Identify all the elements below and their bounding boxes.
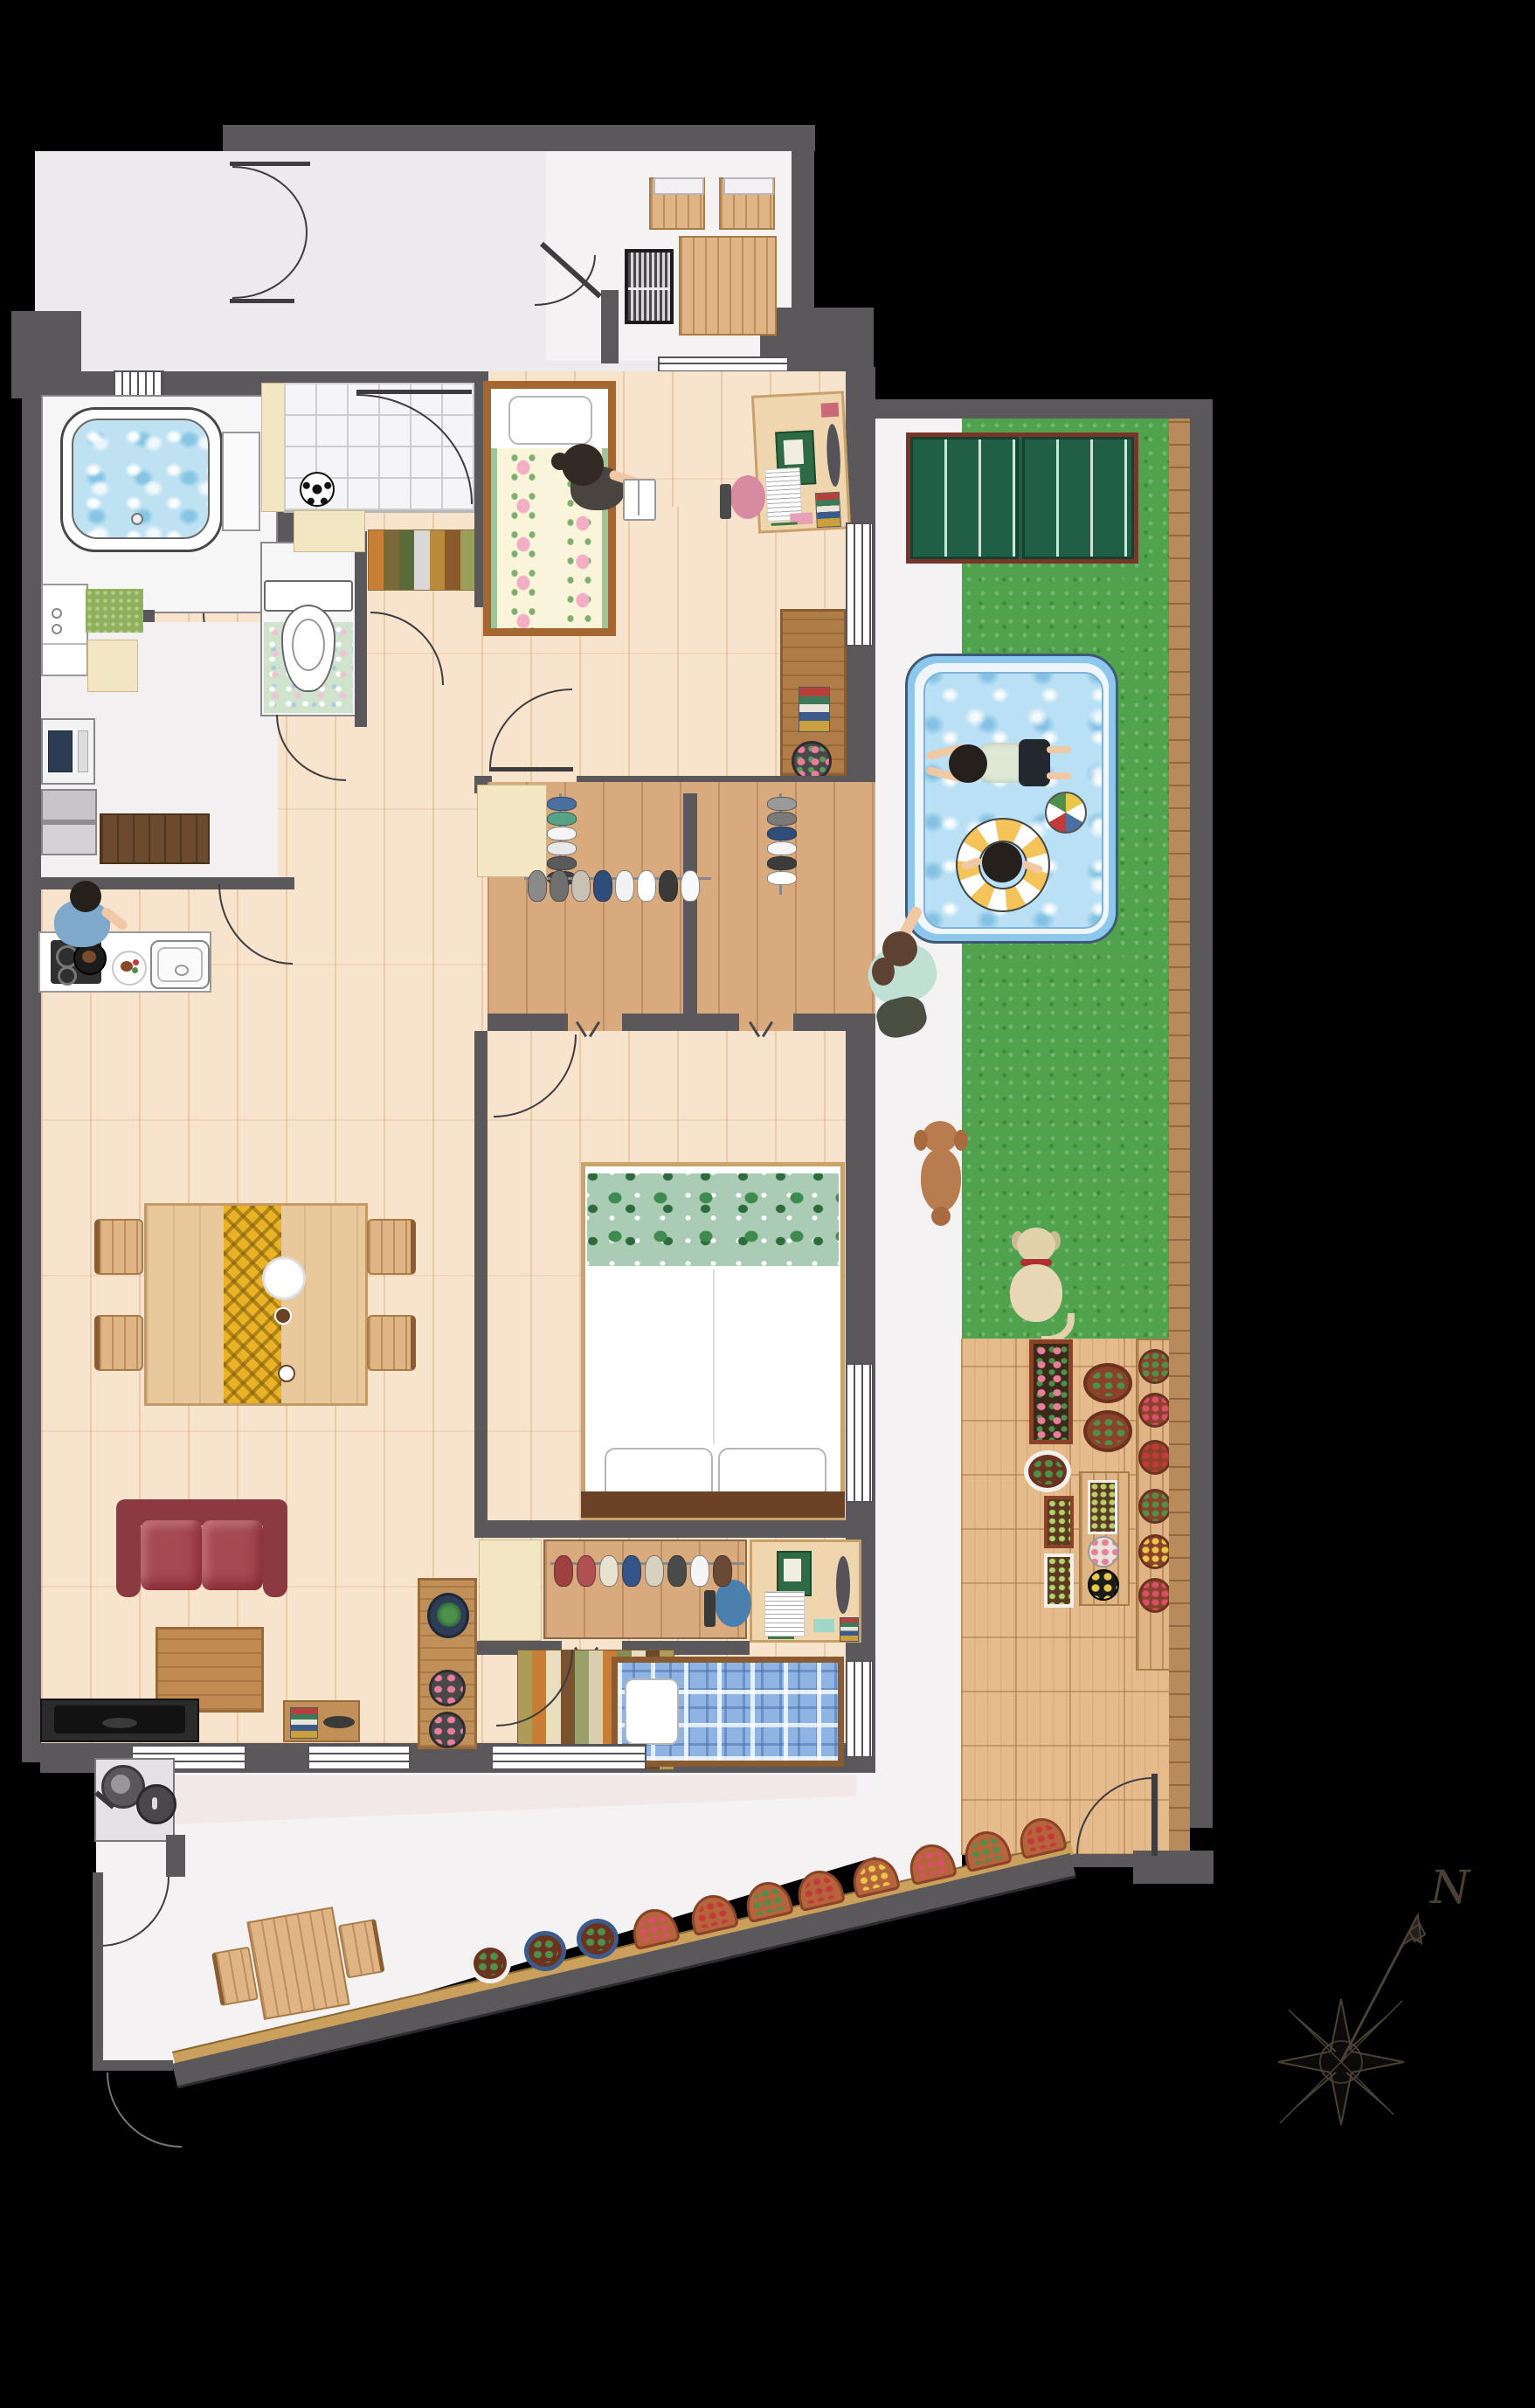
balcony-chair (649, 177, 705, 230)
potted-plant (427, 1593, 469, 1638)
sofa-red (116, 1499, 287, 1601)
flower-pot (429, 1670, 466, 1706)
hanging-clothes (690, 1555, 709, 1587)
dining-table (144, 1203, 368, 1406)
hanging-clothes (577, 1555, 596, 1587)
floor-plan: N (0, 0, 1535, 2408)
bedroom2-window (846, 1363, 874, 1503)
entrance-double-door (230, 162, 310, 166)
plate-of-food (112, 951, 147, 986)
child-in-swim-ring (956, 818, 1047, 909)
desk-chair-pink (720, 470, 765, 522)
garden-outer-wall (1190, 399, 1213, 1828)
hanging-clothes (767, 841, 797, 855)
tv (54, 1706, 185, 1733)
compass-rose: N (1271, 1861, 1472, 2149)
hanging-clothes (547, 812, 577, 826)
bed-double-leaf (581, 1162, 845, 1522)
kitchen-sideboard (100, 813, 210, 864)
pot-lid-icon (136, 1784, 176, 1824)
bookshelf-bedroom1 (780, 609, 847, 777)
hanging-clothes (645, 1555, 664, 1587)
white-rim-pot (1024, 1450, 1071, 1492)
hanging-clothes (767, 856, 797, 870)
hanging-clothes (571, 870, 591, 902)
balcony-table (679, 236, 777, 336)
hanging-clothes (767, 797, 797, 811)
stripe (445, 530, 460, 590)
stripe (369, 530, 384, 590)
washing-machine (41, 718, 95, 785)
child-swimming (924, 730, 1064, 797)
dog-cream (992, 1228, 1080, 1337)
desk-bedroom1 (751, 391, 851, 533)
book-icon (623, 479, 656, 521)
low-bookshelf (283, 1700, 360, 1742)
hanging-clothes (622, 1555, 641, 1587)
refrigerator (41, 789, 97, 855)
dining-chair (367, 1219, 416, 1275)
pillow (508, 396, 592, 445)
stripe (460, 530, 475, 590)
ledge-plant-pot (469, 1943, 511, 1983)
hanging-clothes (713, 1555, 732, 1587)
hanging-clothes (637, 870, 656, 902)
table-runner (224, 1206, 281, 1403)
hanging-clothes (550, 870, 569, 902)
compass-north-label: N (1428, 1862, 1471, 1914)
beach-ball-icon (1045, 792, 1087, 834)
planter-small (1044, 1496, 1074, 1548)
hanging-clothes (547, 827, 577, 841)
laundry-cabinet (41, 584, 88, 676)
stripe (414, 530, 429, 590)
folding-door (750, 1021, 772, 1036)
laundry-green-mat (86, 589, 143, 633)
terrace-table (246, 1906, 349, 2020)
hanging-clothes (659, 870, 678, 902)
woman-at-pool (849, 900, 963, 1048)
hanging-clothes (767, 827, 797, 841)
hanging-clothes (547, 841, 577, 855)
hanging-clothes (767, 812, 797, 826)
pillow (625, 1678, 679, 1745)
stripe (384, 530, 398, 590)
hanging-clothes (615, 870, 634, 902)
terracotta-pot (1083, 1410, 1132, 1452)
hanging-clothes (681, 870, 700, 902)
hanging-clothes (767, 871, 797, 885)
hanging-clothes (547, 856, 577, 870)
planter-box (1029, 1339, 1073, 1444)
kids-south-window (491, 1744, 646, 1770)
stripe (399, 530, 414, 590)
ledge-plant-pot (524, 1931, 566, 1971)
balcony-chair (719, 177, 775, 230)
garden-gate-south (107, 2072, 182, 2148)
terrace-chair (211, 1947, 259, 2007)
person-girl-reading (546, 444, 655, 524)
bathroom (41, 395, 278, 613)
ledge-plant-pot (577, 1919, 619, 1959)
floor-grate-icon (625, 249, 674, 324)
kitchen-sink (150, 940, 210, 989)
storage-shed (906, 432, 1138, 564)
dog-brown-poodle (910, 1121, 973, 1228)
bathtub (60, 407, 223, 552)
person-cooking (54, 875, 122, 956)
dining-chair (94, 1315, 143, 1371)
stripe (430, 530, 445, 590)
planter-small-white (1044, 1553, 1074, 1608)
bedroom1-window (846, 522, 874, 647)
plant-bench (1079, 1471, 1130, 1606)
kids-window (846, 1660, 874, 1758)
dining-chair (367, 1315, 416, 1371)
hanging-clothes (599, 1555, 619, 1587)
plant-shelf (418, 1578, 477, 1749)
terracotta-pot (1083, 1363, 1132, 1403)
garden-fence-wood (1169, 419, 1190, 1854)
closet-cabinet (477, 785, 547, 877)
hanging-clothes (667, 1555, 687, 1587)
folding-door (577, 1021, 599, 1036)
hanging-clothes (554, 1555, 573, 1587)
living-window (308, 1744, 411, 1770)
hanging-clothes (528, 870, 547, 902)
desk-kids (750, 1540, 861, 1643)
bathroom-window (114, 370, 164, 398)
flower-pot (429, 1712, 466, 1748)
kids-closet-cabinet (479, 1540, 542, 1641)
hanging-clothes (547, 797, 577, 811)
soccer-ball-icon (300, 472, 335, 507)
genkan-striped-mat (368, 529, 476, 591)
dining-chair (94, 1219, 143, 1275)
hanging-clothes (593, 870, 612, 902)
